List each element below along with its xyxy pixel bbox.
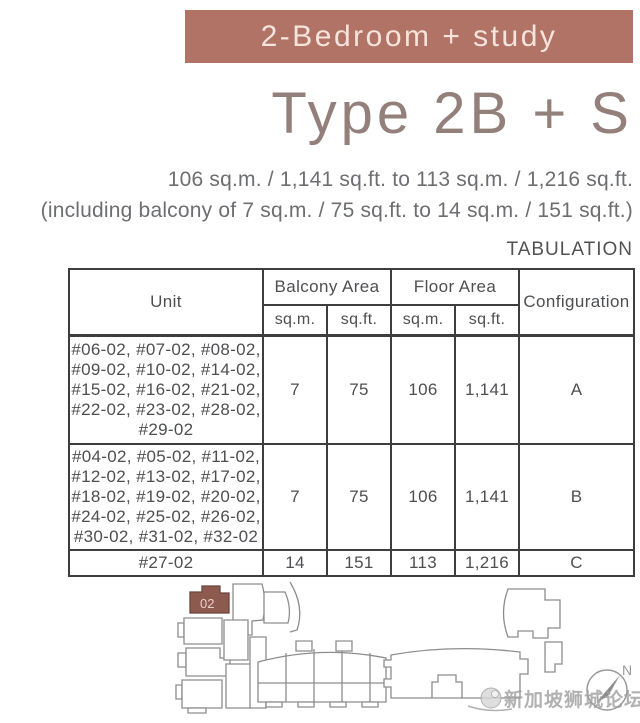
floor-sqft-value: 1,141 bbox=[455, 444, 519, 550]
balcony-sqft-value: 75 bbox=[327, 336, 391, 445]
tabulation-table: Unit Balcony Area Floor Area Configurati… bbox=[68, 268, 635, 577]
area-range-line: 106 sq.m. / 1,141 sq.ft. to 113 sq.m. / … bbox=[0, 164, 633, 195]
tabulation-title: TABULATION bbox=[507, 239, 633, 261]
floor-sqm-value: 106 bbox=[391, 444, 455, 550]
balcony-sqm-value: 7 bbox=[263, 336, 327, 445]
col-header-unit: Unit bbox=[69, 269, 263, 336]
floor-sqft-value: 1,141 bbox=[455, 336, 519, 445]
col-header-configuration: Configuration bbox=[519, 269, 634, 336]
configuration-value: B bbox=[519, 444, 634, 550]
unit-list: #06-02, #07-02, #08-02, #09-02, #10-02, … bbox=[69, 336, 263, 445]
unit-type-banner-label: 2-Bedroom + study bbox=[261, 20, 558, 54]
right-building-outline bbox=[384, 589, 562, 698]
watermark: 新加坡狮城论坛 bbox=[468, 688, 640, 711]
balcony-sqm-value: 7 bbox=[263, 444, 327, 550]
col-header-balcony-sqm: sq.m. bbox=[263, 305, 327, 336]
balcony-range-line: (including balcony of 7 sq.m. / 75 sq.ft… bbox=[0, 195, 633, 226]
table-row-config-a: #06-02, #07-02, #08-02, #09-02, #10-02, … bbox=[69, 336, 634, 445]
col-header-floor-sqm: sq.m. bbox=[391, 305, 455, 336]
floor-sqm-value: 106 bbox=[391, 336, 455, 445]
col-header-balcony-sqft: sq.ft. bbox=[327, 305, 391, 336]
table-row-config-b: #04-02, #05-02, #11-02, #12-02, #13-02, … bbox=[69, 444, 634, 550]
watermark-text: 新加坡狮城论坛 bbox=[504, 688, 640, 711]
unit-02-label: 02 bbox=[200, 596, 214, 611]
brochure-page: 2-Bedroom + study Type 2B + S 106 sq.m. … bbox=[0, 0, 640, 723]
page-title: Type 2B + S bbox=[271, 80, 633, 147]
balcony-sqft-value: 75 bbox=[327, 444, 391, 550]
area-summary: 106 sq.m. / 1,141 sq.ft. to 113 sq.m. / … bbox=[0, 164, 633, 226]
col-header-balcony-area: Balcony Area bbox=[263, 269, 391, 305]
compass-north-label: N bbox=[622, 662, 632, 678]
col-header-floor-sqft: sq.ft. bbox=[455, 305, 519, 336]
unit-type-banner: 2-Bedroom + study bbox=[185, 10, 633, 63]
site-plan: 02 N 新加坡狮城论坛 bbox=[0, 565, 640, 723]
unit-list: #04-02, #05-02, #11-02, #12-02, #13-02, … bbox=[69, 444, 263, 550]
col-header-floor-area: Floor Area bbox=[391, 269, 519, 305]
configuration-value: A bbox=[519, 336, 634, 445]
